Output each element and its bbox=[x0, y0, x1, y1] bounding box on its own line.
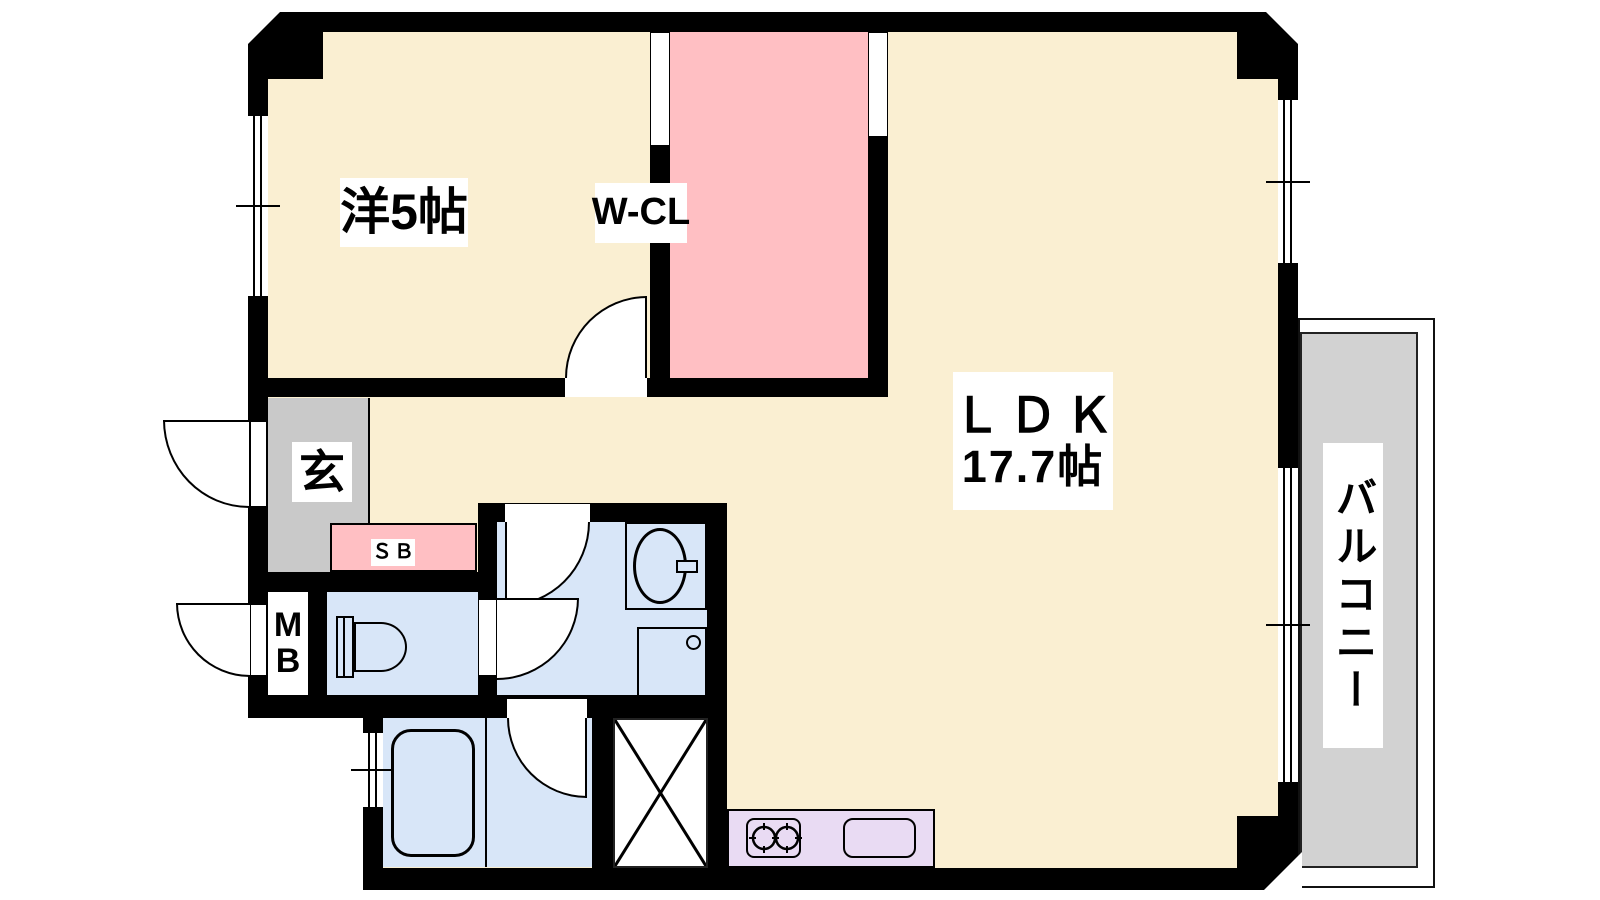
entrance-door-leaf bbox=[249, 420, 268, 508]
washroom-door-opening bbox=[505, 504, 590, 522]
window-bathroom-west bbox=[363, 733, 383, 807]
room-label-western: 洋5帖 bbox=[340, 178, 468, 247]
window-balcony-sliding-door bbox=[1278, 468, 1298, 782]
floor-plan: 洋5帖 W-CL ＬＤＫ 17.7帖 玄 ＳＢ M B バルコニー bbox=[0, 0, 1600, 900]
ldk-name: ＬＤＫ bbox=[953, 392, 1121, 442]
room-wcl-floor bbox=[670, 32, 868, 380]
bathtub-icon bbox=[391, 729, 475, 857]
room-ldk-floor-upper bbox=[888, 32, 1280, 397]
bathroom-divider-line bbox=[485, 718, 487, 867]
pipe-space-box bbox=[613, 718, 708, 868]
pipe-space-x-icon bbox=[615, 720, 706, 866]
window-western-west bbox=[248, 116, 268, 296]
outside-mask bbox=[244, 718, 363, 900]
room-label-ldk: ＬＤＫ 17.7帖 bbox=[953, 372, 1113, 510]
room-label-balcony: バルコニー bbox=[1323, 443, 1383, 748]
wall-genkan-south bbox=[248, 572, 497, 592]
window-ldk-east-upper bbox=[1278, 100, 1298, 263]
room-label-wcl: W-CL bbox=[595, 183, 687, 243]
toilet-tank-divider bbox=[343, 616, 345, 678]
mb-door-leaf bbox=[249, 603, 268, 677]
kitchen-sink-icon bbox=[843, 818, 916, 858]
wall-bottom bbox=[363, 868, 1298, 890]
washing-machine-drain-icon bbox=[686, 635, 701, 650]
washbasin-faucet-icon bbox=[676, 560, 698, 573]
toilet-bowl-icon bbox=[354, 622, 407, 672]
ldk-size: 17.7帖 bbox=[962, 443, 1105, 490]
gas-stove-icon bbox=[746, 818, 801, 858]
toilet-door-opening bbox=[479, 600, 496, 675]
room-label-mb: M B bbox=[268, 604, 308, 684]
mb-line1: M bbox=[274, 608, 302, 644]
toilet-tank-icon bbox=[336, 616, 354, 678]
western-door-opening bbox=[565, 378, 647, 397]
wall-mb-toilet bbox=[308, 592, 327, 695]
wcl-opening-east bbox=[869, 33, 887, 136]
wall-washroom-east bbox=[707, 503, 727, 890]
mb-door-swing bbox=[176, 603, 250, 677]
entrance-door-swing bbox=[163, 420, 249, 508]
mb-line2: B bbox=[276, 644, 301, 680]
wall-sanitary-south bbox=[248, 695, 727, 718]
wall-top bbox=[248, 12, 1298, 32]
wcl-opening-west bbox=[651, 33, 669, 145]
room-label-genkan: 玄 bbox=[292, 442, 352, 502]
genkan-area-lower bbox=[268, 523, 330, 572]
room-label-sb: ＳＢ bbox=[371, 539, 415, 566]
pillar-bottom-right bbox=[1237, 816, 1280, 868]
bathroom-door-opening bbox=[507, 699, 587, 718]
wall-bathroom-ps bbox=[592, 718, 613, 868]
